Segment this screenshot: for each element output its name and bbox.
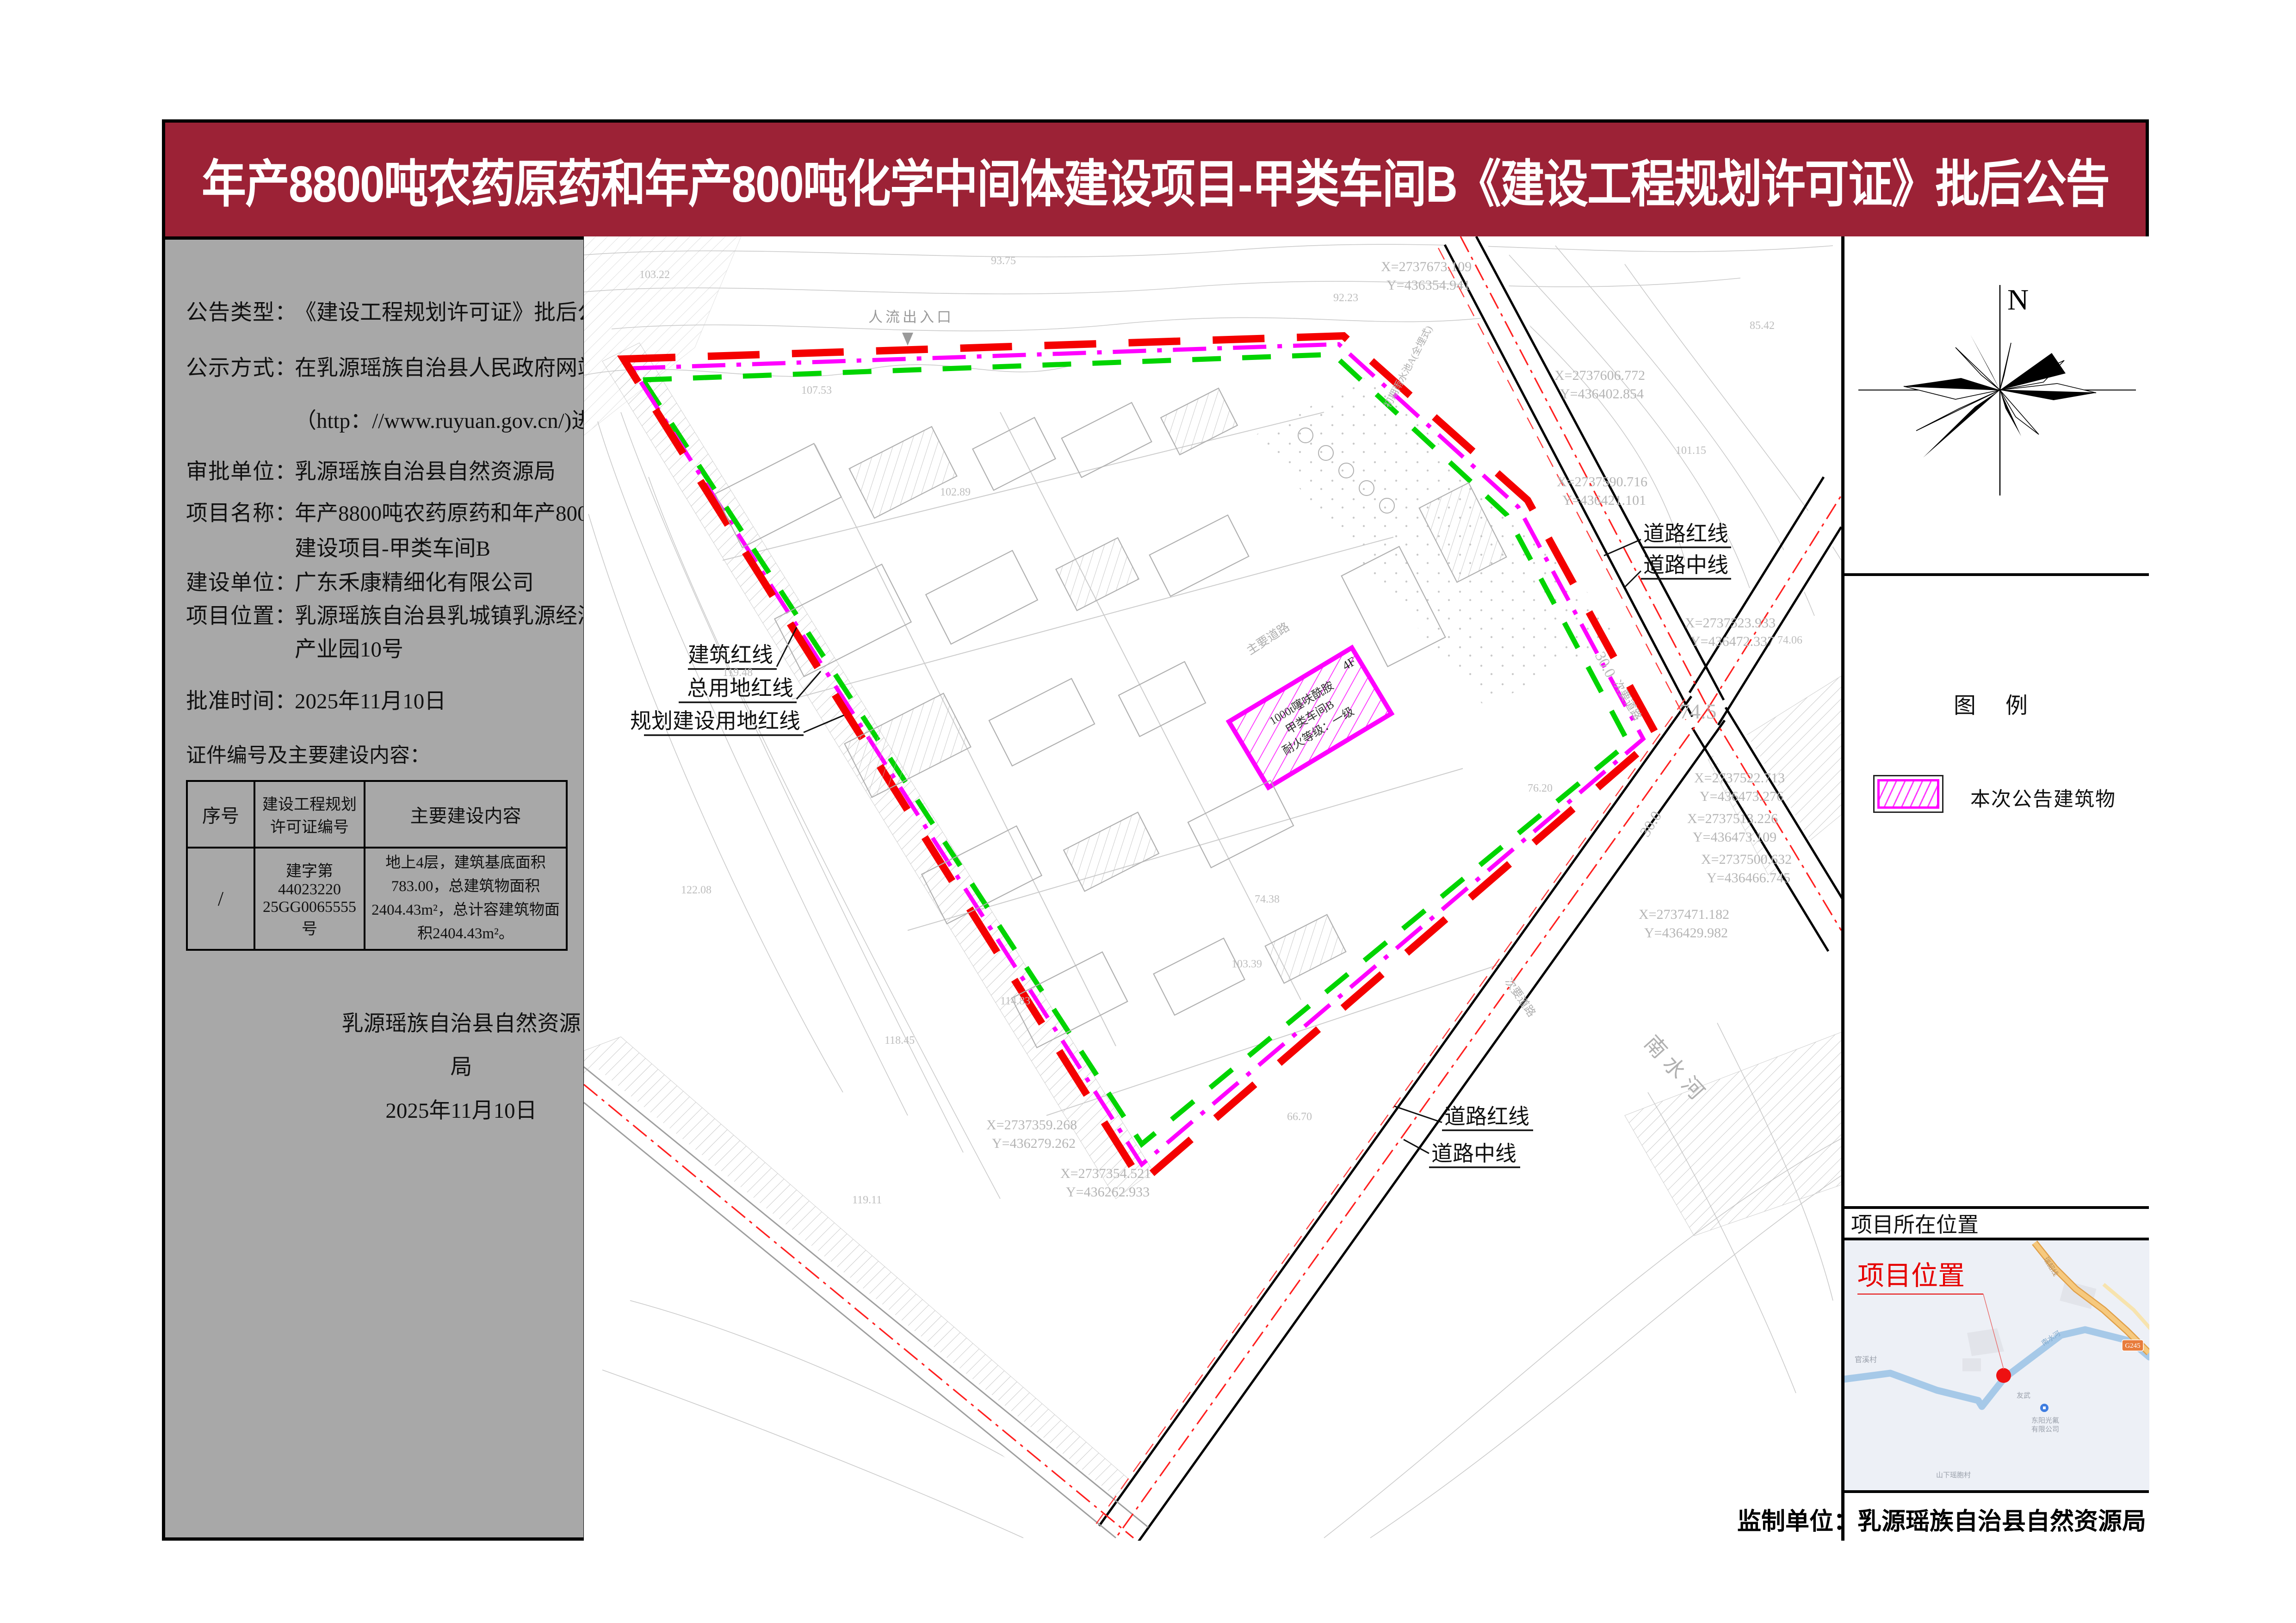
coord-label: X=2737673.109	[1381, 259, 1472, 274]
label-pedestrian-exit: 人流出入口	[868, 309, 954, 325]
cell-seq: /	[187, 848, 254, 950]
parcel-building-rect	[849, 427, 957, 518]
field-approval-date: 批准时间：2025年11月10日	[186, 683, 446, 715]
parcel-building	[1161, 388, 1238, 455]
credit-line: 监制单位：乳源瑶族自治县自然资源局	[1844, 1498, 2149, 1540]
parcel-building	[1056, 538, 1139, 610]
site-plan: 1000t噻呋酰胺 甲类车间B 耐火等级：一级 4F 建筑红线 总用地红线 规划…	[584, 236, 1841, 1541]
elevation-label: 101.15	[1676, 445, 1706, 457]
coord-label: X=2737354.521	[1060, 1166, 1151, 1181]
minimap-village-1: 官溪村	[1855, 1356, 1877, 1364]
pedestrian-exit-marker	[902, 333, 913, 346]
page-title: 年产8800吨农药原药和年产800吨化学中间体建设项目-甲类车间B《建设工程规划…	[202, 142, 2109, 217]
table-caption: 证件编号及主要建设内容：	[186, 738, 430, 768]
coord-label: X=2737359.268	[986, 1117, 1077, 1133]
legend-item-label: 本次公告建筑物	[1970, 783, 2116, 812]
callout-road-centerline-top: 道路中线	[1643, 553, 1728, 577]
svg-text:G245: G245	[2125, 1342, 2140, 1350]
coord-label: Y=436354.941	[1386, 278, 1470, 293]
field-project-name-cont: 建设项目-甲类车间B	[295, 530, 490, 562]
signature-org: 乳源瑶族自治县自然资源局	[332, 1002, 591, 1089]
parcel-building	[1064, 812, 1159, 892]
elevation-label: 103.22	[639, 269, 670, 281]
table-row: / 建字第4402322025GG0065555号 地上4层，建筑基底面积783…	[187, 848, 567, 950]
coord-label: X=2737522.713	[1694, 770, 1785, 786]
elevation-label: 122.08	[681, 884, 712, 896]
parcel-building-rect	[1119, 662, 1206, 737]
coord-label: X=2737513.226	[1687, 811, 1778, 826]
parcel-building-rect	[1150, 515, 1249, 596]
parcel-building-rect	[1188, 781, 1293, 868]
parcel-building	[972, 417, 1055, 490]
parcel-building	[989, 679, 1095, 766]
location-section-title: 项目所在位置	[1844, 1206, 2149, 1240]
legend-swatch	[1873, 775, 1943, 813]
elevation-label: 93.75	[991, 255, 1016, 267]
coord-label: X=2737606.772	[1554, 368, 1645, 383]
coord-label: Y=436421.101	[1562, 493, 1646, 508]
coord-label: X=2737590.716	[1557, 474, 1647, 489]
parcel-building-rect	[926, 551, 1038, 644]
elevation-label: 114.83	[1000, 995, 1030, 1007]
elevation-label: 85.42	[1750, 320, 1775, 332]
elevation-label: 119.11	[852, 1194, 882, 1206]
elevation-label: 107.53	[801, 384, 832, 396]
parcel-building	[1265, 915, 1346, 983]
header-banner: 年产8800吨农药原药和年产800吨化学中间体建设项目-甲类车间B《建设工程规划…	[162, 119, 2149, 240]
coord-label: Y=436262.933	[1066, 1184, 1150, 1200]
col-header-content: 主要建设内容	[365, 781, 567, 848]
project-location-label: 项目位置	[1857, 1261, 1965, 1291]
parcel-building-rect	[972, 417, 1055, 490]
label-junction-elevation: 74.5	[1679, 700, 1717, 723]
project-location-dot	[1996, 1368, 2011, 1383]
minimap-drawing: 南水河 瑞韶线 G245 官溪村 友武 东阳光氟 有限公司 山下瑶胞村 项目位置	[1844, 1240, 2149, 1490]
parcel-building	[926, 551, 1038, 644]
elevation-label: 74.38	[1255, 893, 1280, 905]
parcel-building	[1150, 515, 1249, 596]
north-label: N	[2007, 283, 2029, 316]
minimap-road-badge: G245	[2122, 1340, 2143, 1351]
col-header-seq: 序号	[187, 781, 254, 848]
callout-total-land-redline: 总用地红线	[687, 676, 793, 700]
elevation-label: 119.48	[723, 667, 753, 679]
col-header-permit-no: 建设工程规划许可证编号	[254, 781, 365, 848]
announced-building: 1000t噻呋酰胺 甲类车间B 耐火等级：一级 4F	[1229, 648, 1391, 787]
callout-planning-land-redline: 规划建设用地红线	[630, 709, 800, 733]
elevation-label: 76.20	[1528, 782, 1553, 794]
parcel-building-rect	[1161, 388, 1238, 455]
permit-table: 序号 建设工程规划许可证编号 主要建设内容 / 建字第4402322025GG0…	[186, 780, 568, 951]
elevation-label: 74.06	[1777, 634, 1802, 646]
signature-block: 乳源瑶族自治县自然资源局 2025年11月10日	[332, 1002, 591, 1133]
wind-rose: N	[1844, 236, 2149, 573]
parcel-building-rect	[1154, 938, 1245, 1015]
callout-road-redline-bottom: 道路红线	[1444, 1105, 1529, 1128]
signature-date: 2025年11月10日	[332, 1089, 591, 1133]
boundary-lines	[624, 336, 1657, 1182]
parcel-building	[1119, 662, 1206, 737]
coord-label: Y=436429.982	[1644, 925, 1728, 941]
coord-label: Y=436473.109	[1693, 830, 1776, 845]
compass-box: N	[1844, 236, 2149, 576]
coord-label: X=2737471.182	[1639, 907, 1729, 922]
elevation-label: 118.45	[885, 1035, 915, 1047]
label-main-road: 主要道路	[1244, 620, 1292, 657]
announced-building-swatch	[1877, 779, 1939, 809]
coord-label: Y=436472.337	[1690, 634, 1774, 649]
cell-permit-no: 建字第4402322025GG0065555号	[254, 848, 365, 950]
minimap-company-marker	[2040, 1404, 2048, 1412]
parcel-building-rect	[1056, 538, 1139, 610]
coord-label: Y=436473.276	[1700, 789, 1783, 804]
minimap-company-l1: 东阳光氟	[2031, 1417, 2059, 1425]
location-minimap: 南水河 瑞韶线 G245 官溪村 友武 东阳光氟 有限公司 山下瑶胞村 项目位置	[1844, 1240, 2149, 1493]
right-panel: N	[1841, 236, 2149, 1541]
coord-label: Y=436466.745	[1707, 870, 1790, 886]
elevation-label: 92.23	[1333, 292, 1358, 304]
announcement-sheet: 年产8800吨农药原药和年产800吨化学中间体建设项目-甲类车间B《建设工程规划…	[0, 0, 2296, 1623]
legend-box: 图 例 本次公告建筑物	[1844, 576, 2149, 1206]
minimap-village-2: 友武	[2017, 1392, 2030, 1400]
legend-title: 图 例	[1844, 687, 2149, 719]
field-publicity-method: 公示方式：在乳源瑶族自治县人民政府网站	[186, 350, 599, 382]
site-plan-drawing: 1000t噻呋酰胺 甲类车间B 耐火等级：一级 4F 建筑红线 总用地红线 规划…	[584, 236, 1841, 1541]
info-sidebar: 公告类型：《建设工程规划许可证》批后公告 公示方式：在乳源瑶族自治县人民政府网站…	[162, 236, 587, 1541]
minimap-company-l2: 有限公司	[2031, 1425, 2059, 1433]
parcel-building	[1188, 781, 1293, 868]
parcel-building	[849, 427, 957, 518]
coord-label: Y=436402.854	[1560, 386, 1644, 402]
field-project-location-cont: 产业园10号	[295, 631, 403, 663]
callout-building-redline: 建筑红线	[688, 643, 773, 667]
cell-content: 地上4层，建筑基底面积783.00，总建筑物面积2404.43m²，总计容建筑物…	[365, 848, 567, 950]
field-approval-authority: 审批单位：乳源瑶族自治县自然资源局	[186, 453, 556, 485]
field-construction-unit: 建设单位：广东禾康精细化有限公司	[186, 564, 534, 596]
coord-label: Y=436279.262	[992, 1136, 1076, 1151]
building-redline-red	[624, 336, 1657, 1182]
field-announcement-type: 公告类型：《建设工程规划许可证》批后公告	[186, 294, 621, 326]
parcel-building	[1154, 938, 1245, 1015]
elevation-label: 103.39	[1232, 958, 1262, 970]
elevation-label: 102.89	[940, 486, 971, 498]
parcel-building-rect	[989, 679, 1095, 766]
parcel-building-rect	[1064, 812, 1159, 892]
callout-road-centerline-bottom: 道路中线	[1431, 1142, 1516, 1165]
parcel-building-rect	[1265, 915, 1346, 983]
coord-label: X=2737523.933	[1685, 615, 1776, 631]
minimap-village-3: 山下瑶胞村	[1936, 1471, 1971, 1479]
callout-road-redline-top: 道路红线	[1643, 522, 1728, 545]
elevation-label: 66.70	[1287, 1111, 1312, 1123]
coord-label: X=2737500.632	[1701, 852, 1792, 867]
